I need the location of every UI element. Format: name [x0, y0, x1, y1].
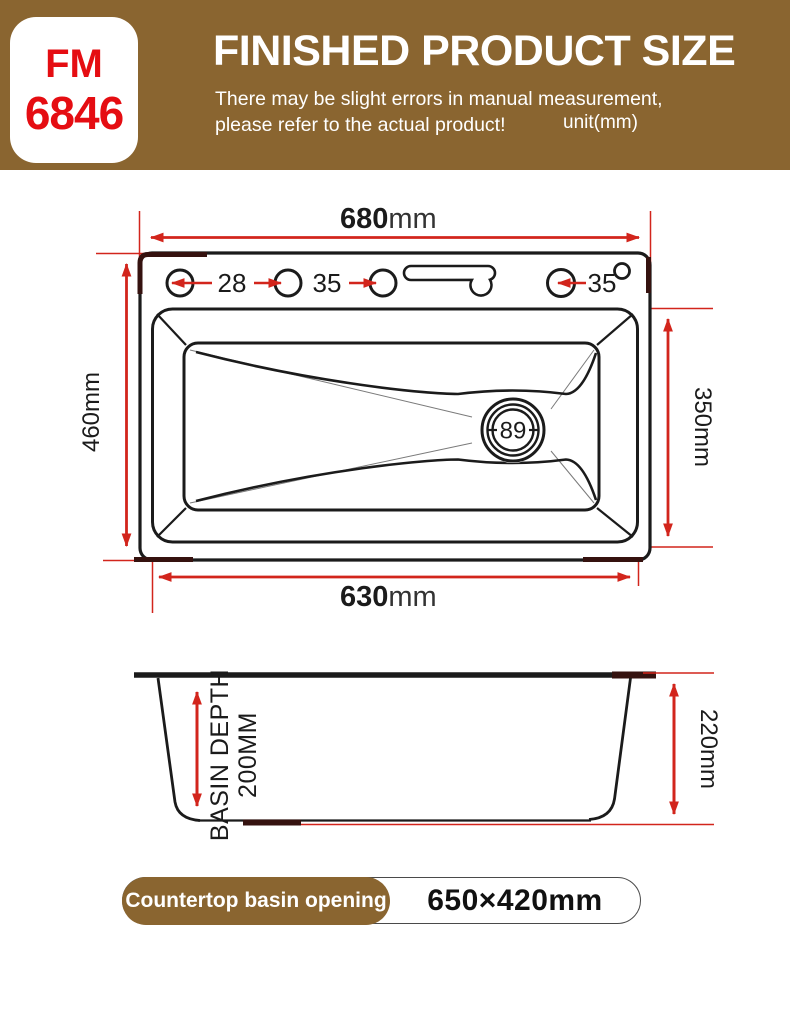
drain-label-89: 89: [500, 418, 527, 445]
side-right-wall: [589, 678, 631, 820]
disclaimer-line1: There may be slight errors in manual mea…: [215, 86, 685, 112]
hole-label-35-middle: 35: [313, 268, 342, 298]
drain: 89: [480, 397, 546, 463]
model-badge: FM 6846: [10, 17, 138, 163]
top-view: 680mm 460mm 350mm 630mm: [78, 203, 716, 613]
hole-label-28: 28: [218, 268, 247, 298]
countertop-opening-size: 650×420mm: [390, 878, 640, 923]
sink-dimension-diagram: 680mm 460mm 350mm 630mm: [0, 170, 790, 877]
unit-note: unit(mm): [563, 112, 638, 134]
basin-depth-label-line2: 200MM: [234, 712, 262, 798]
hole-label-35-right: 35: [588, 268, 617, 298]
countertop-opening-pill: Countertop basin opening 650×420mm: [122, 877, 641, 924]
model-code-line1: FM: [45, 44, 103, 84]
dim-label-350: 350mm: [689, 387, 716, 467]
dim-label-220: 220mm: [695, 709, 722, 789]
page-title: FINISHED PRODUCT SIZE: [213, 27, 788, 76]
side-extension-lines: [301, 673, 714, 825]
header-banner: FM 6846 FINISHED PRODUCT SIZE There may …: [0, 0, 790, 170]
dim-label-460: 460mm: [78, 372, 105, 452]
model-code-line2: 6846: [25, 90, 123, 136]
side-left-wall: [158, 678, 200, 821]
side-view: BASIN DEPTH 200MM 220mm: [134, 669, 722, 841]
countertop-opening-badge: Countertop basin opening: [122, 877, 390, 925]
basin-depth-label-line1: BASIN DEPTH: [206, 669, 234, 841]
dim-label-680: 680mm: [340, 203, 437, 235]
dim-label-630: 630mm: [340, 581, 437, 613]
